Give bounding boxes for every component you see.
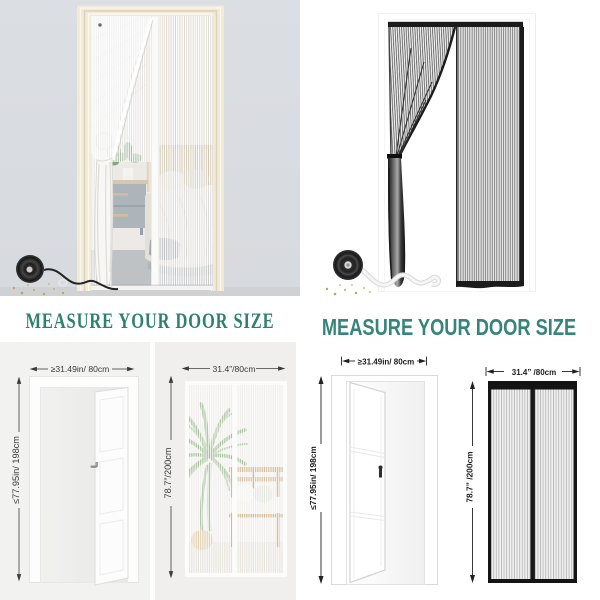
svg-text:≥31.49in/ 80cm: ≥31.49in/ 80cm bbox=[51, 364, 110, 374]
svg-text:≤77.95in/ 198cm: ≤77.95in/ 198cm bbox=[11, 436, 21, 504]
svg-text:≥31.49in/ 80cm: ≥31.49in/ 80cm bbox=[358, 357, 414, 366]
svg-text:78.7” /200cm: 78.7” /200cm bbox=[465, 451, 475, 502]
svg-text:31.4” /80cm: 31.4” /80cm bbox=[512, 368, 556, 377]
svg-text:31.4”/80cm: 31.4”/80cm bbox=[213, 364, 256, 374]
svg-text:78.7”/200cm: 78.7”/200cm bbox=[163, 447, 173, 498]
svg-text:≤77.95in/ 198cm: ≤77.95in/ 198cm bbox=[308, 446, 318, 510]
